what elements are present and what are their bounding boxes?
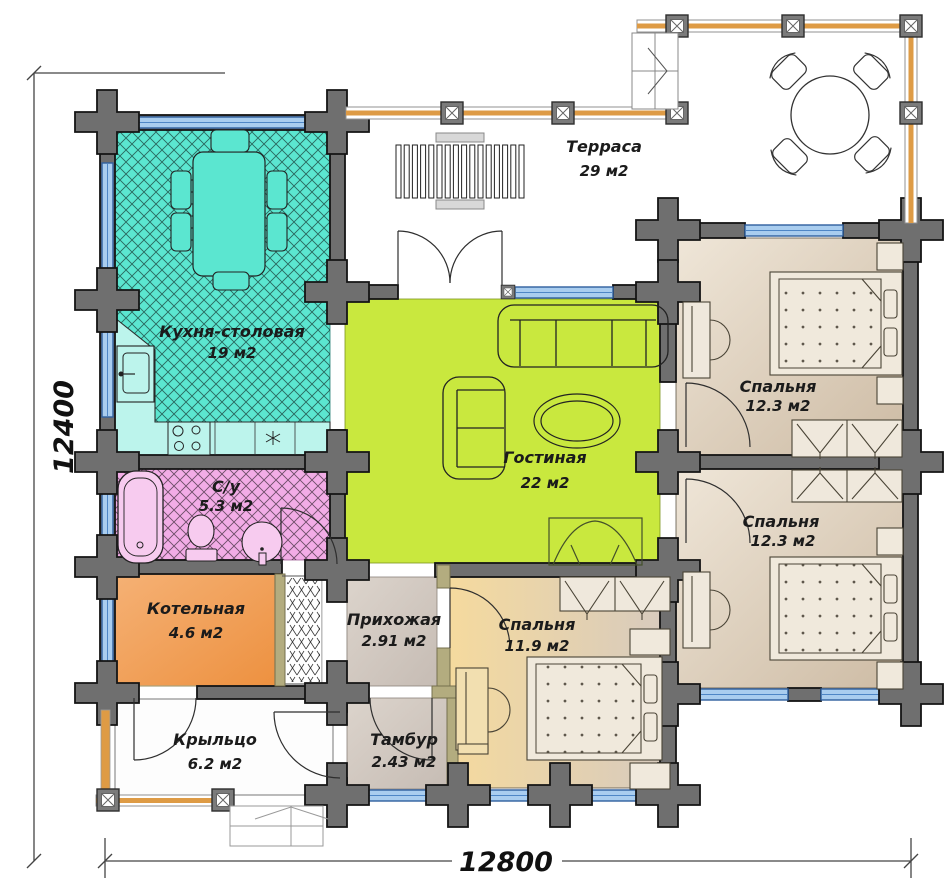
- pillow: [644, 675, 657, 703]
- window: [745, 225, 843, 236]
- closet-hatch: [287, 578, 320, 682]
- pillow: [884, 613, 897, 641]
- nightstand: [630, 629, 670, 655]
- kitchen-sink: [117, 346, 154, 402]
- room-area-bathroom: 5.3 м2: [199, 497, 254, 515]
- room-label-kitchen: Кухня-столовая: [159, 322, 304, 341]
- room-area-porch: 6.2 м2: [188, 755, 243, 773]
- room-label-vestibule: Тамбур: [370, 730, 438, 749]
- nightstand: [877, 377, 903, 404]
- room-label-bedroom-middle: Спальня: [499, 615, 576, 634]
- room-area-kitchen: 19 м2: [208, 344, 257, 362]
- window: [700, 689, 788, 700]
- bathtub: [118, 471, 163, 563]
- room-label-terrace: Терраса: [566, 137, 642, 156]
- pillow: [884, 290, 897, 318]
- nightstand: [630, 763, 670, 789]
- nightstand: [877, 528, 903, 555]
- kitchen-stove: [168, 422, 210, 455]
- bed-mattress: [779, 564, 881, 653]
- room-area-living: 22 м2: [521, 474, 570, 492]
- window: [135, 117, 331, 128]
- entrance-glazed-door: [365, 790, 432, 801]
- room-label-bedroom-bottom: Спальня: [743, 512, 820, 531]
- room-area-boiler: 4.6 м2: [168, 624, 224, 642]
- bed-mattress: [779, 279, 881, 368]
- pergola-slats: [396, 133, 524, 209]
- room-living-floor: [345, 299, 660, 563]
- room-area-hallway: 2.91 м2: [362, 632, 427, 650]
- bed-mattress: [536, 664, 641, 753]
- room-label-boiler: Котельная: [147, 599, 245, 618]
- room-area-bedroom-top: 12.3 м2: [746, 397, 811, 415]
- room-area-bedroom-bottom: 12.3 м2: [751, 532, 816, 550]
- french-door-living-terrace: [398, 231, 515, 299]
- room-label-porch: Крыльцо: [173, 730, 257, 749]
- window: [102, 163, 113, 283]
- room-area-vestibule: 2.43 м2: [372, 753, 437, 771]
- nightstand: [877, 243, 903, 270]
- dimension-width-label: 12800: [459, 847, 553, 878]
- room-label-bathroom: С/у: [212, 477, 241, 496]
- entrance-steps: [230, 806, 328, 846]
- pillow: [884, 575, 897, 603]
- room-area-terrace: 29 м2: [580, 162, 629, 180]
- window: [515, 287, 613, 298]
- floor-plan-page: 12400 12800: [0, 0, 946, 887]
- pillow: [884, 328, 897, 356]
- room-label-living: Гостиная: [503, 448, 586, 467]
- terrace-dining-set: [765, 48, 895, 179]
- room-label-bedroom-top: Спальня: [740, 377, 817, 396]
- room-label-hallway: Прихожая: [347, 610, 441, 629]
- dining-table: [193, 152, 265, 276]
- wardrobe: [792, 467, 902, 502]
- terrace-stairs: [632, 33, 678, 109]
- nightstand: [877, 662, 903, 689]
- floor-plan-canvas: 12400 12800: [0, 0, 946, 887]
- wardrobe: [792, 420, 902, 459]
- room-area-bedroom-middle: 11.9 м2: [505, 637, 570, 655]
- pillow: [644, 713, 657, 741]
